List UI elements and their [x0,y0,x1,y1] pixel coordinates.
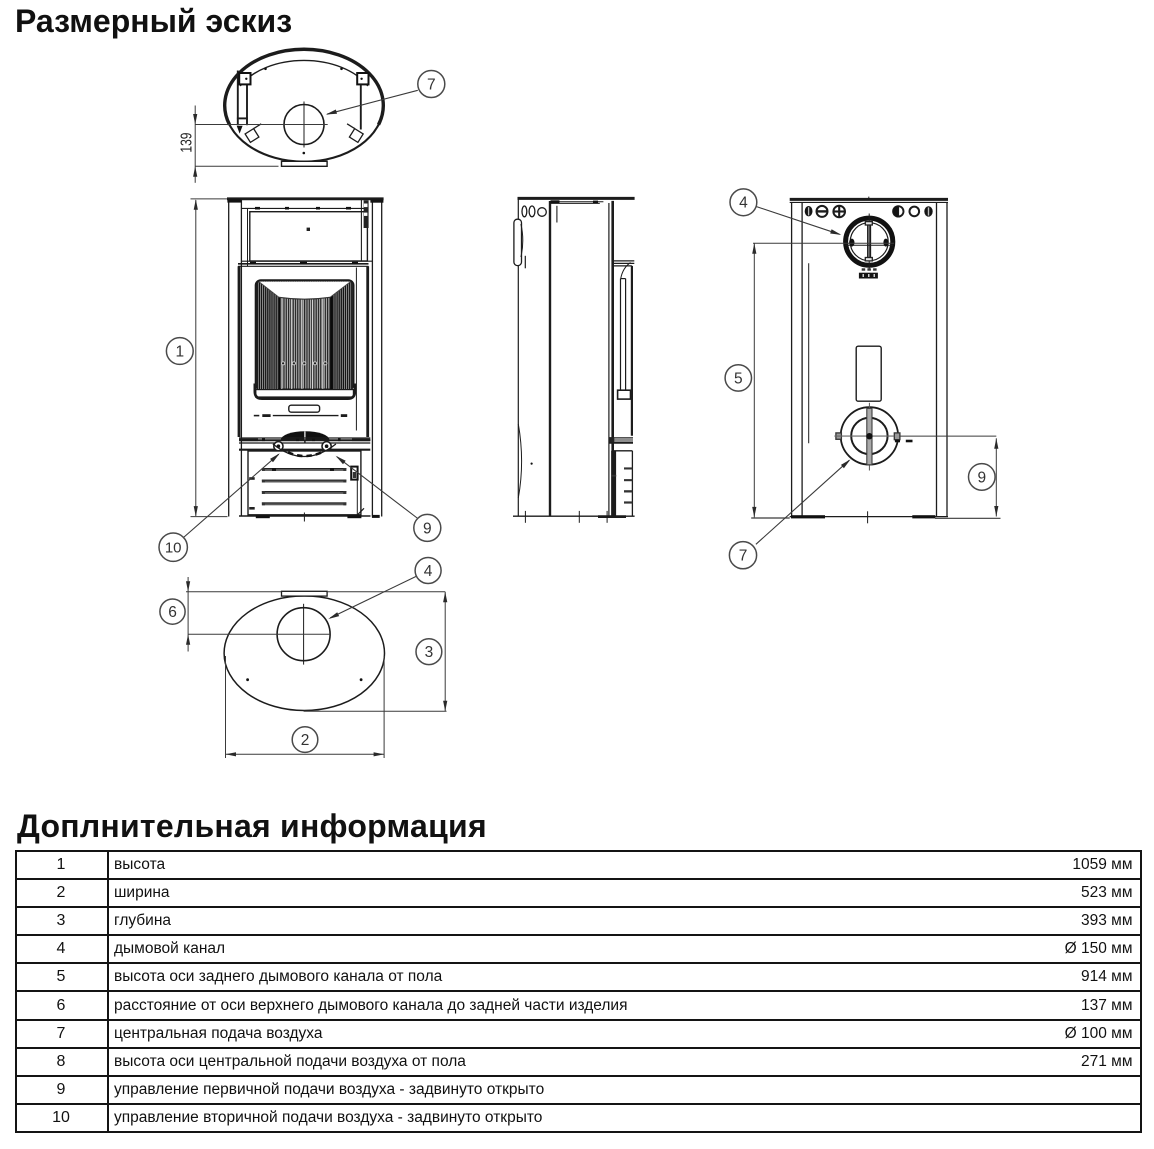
svg-text:1: 1 [175,343,184,360]
svg-text:5: 5 [734,370,743,387]
svg-text:9: 9 [977,469,986,486]
svg-text:139: 139 [179,133,196,153]
svg-text:3: 3 [425,644,434,661]
svg-text:4: 4 [739,195,748,212]
svg-text:4: 4 [424,563,433,580]
svg-text:10: 10 [165,539,182,556]
svg-text:7: 7 [739,548,748,565]
svg-text:2: 2 [301,732,310,749]
svg-text:6: 6 [168,604,177,621]
svg-text:7: 7 [427,76,436,93]
svg-text:9: 9 [423,520,432,537]
